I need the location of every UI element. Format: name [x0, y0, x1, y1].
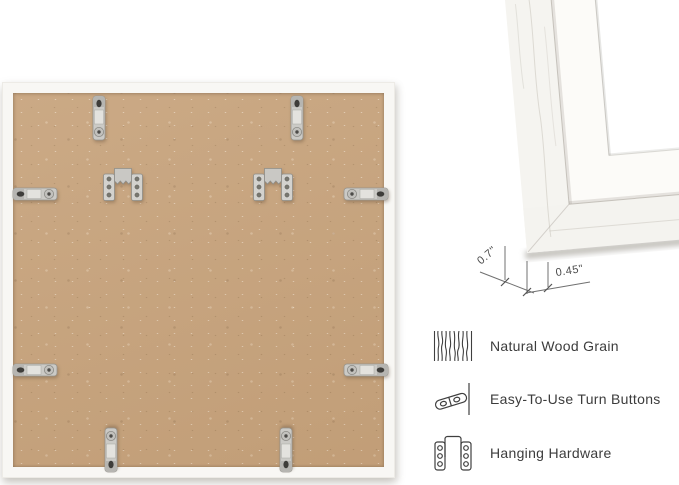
- turn-button-icon: [433, 382, 473, 416]
- feature-label: Easy-To-Use Turn Buttons: [490, 391, 661, 407]
- frame-corner-closeup: 0.7" 0.45": [440, 0, 679, 312]
- feature-label: Hanging Hardware: [490, 445, 612, 461]
- turn-button-hanger-right-upper-icon: [343, 187, 389, 201]
- turn-button-hanger-top-left-icon: [92, 95, 106, 141]
- wood-grain-icon: [433, 331, 473, 361]
- turn-button-hanger-top-right-icon: [290, 95, 304, 141]
- turn-button-hanger-right-lower-icon: [343, 363, 389, 377]
- sawtooth-hanging-hardware-right-icon: [253, 168, 293, 201]
- white-frame-corner: [503, 0, 679, 259]
- depth-dimension-label: 0.7": [475, 244, 499, 267]
- mdf-backing-board: [13, 93, 384, 467]
- feature-hanging-hardware: Hanging Hardware: [433, 434, 612, 472]
- sawtooth-hanging-hardware-left-icon: [103, 168, 143, 201]
- frame-back-photo: [2, 82, 395, 478]
- turn-button-hanger-left-upper-icon: [12, 187, 58, 201]
- product-infographic: 0.7" 0.45" Natural Wood Grain: [0, 0, 679, 485]
- turn-button-hanger-bottom-right-icon: [279, 427, 293, 473]
- face-width-dimension-label: 0.45": [555, 263, 584, 279]
- feature-turn-buttons: Easy-To-Use Turn Buttons: [433, 380, 661, 418]
- feature-label: Natural Wood Grain: [490, 338, 619, 354]
- turn-button-hanger-left-lower-icon: [12, 363, 58, 377]
- hanging-hardware-icon: [433, 435, 473, 471]
- feature-wood-grain: Natural Wood Grain: [433, 327, 619, 365]
- turn-button-hanger-bottom-left-icon: [104, 427, 118, 473]
